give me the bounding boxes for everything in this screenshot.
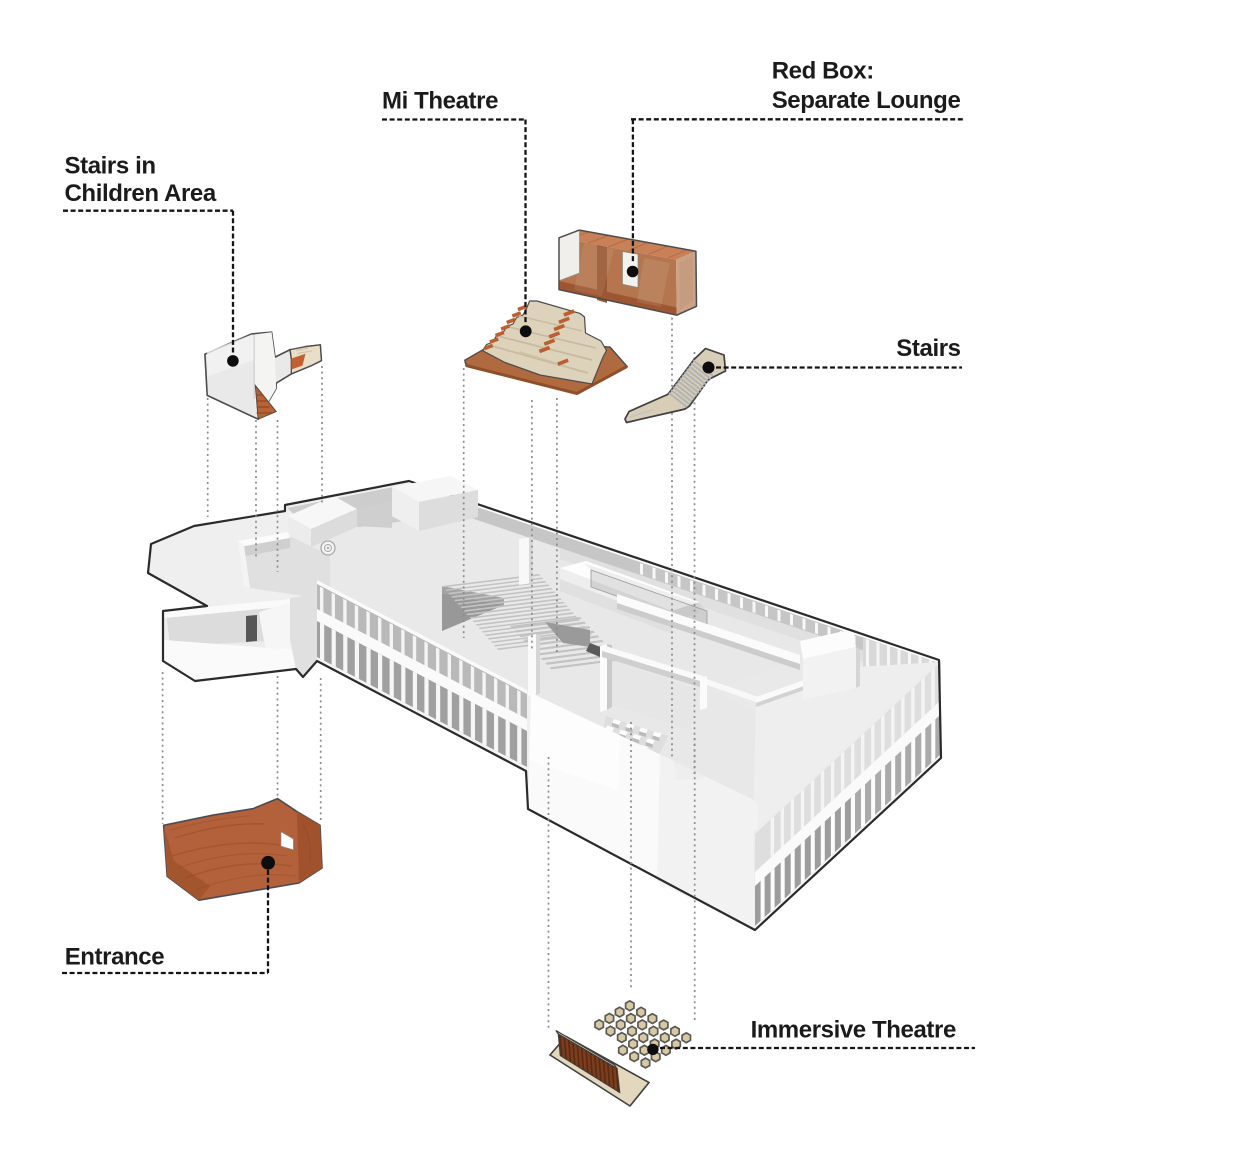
svg-text:Red Box:: Red Box:: [772, 57, 874, 84]
svg-text:Mi Theatre: Mi Theatre: [382, 87, 498, 114]
svg-text:Stairs in: Stairs in: [65, 153, 156, 180]
svg-text:Children Area: Children Area: [65, 180, 217, 207]
svg-text:Entrance: Entrance: [65, 943, 165, 970]
svg-text:Separate Lounge: Separate Lounge: [772, 87, 961, 114]
svg-text:Stairs: Stairs: [896, 335, 960, 362]
svg-text:Immersive Theatre: Immersive Theatre: [751, 1016, 956, 1043]
